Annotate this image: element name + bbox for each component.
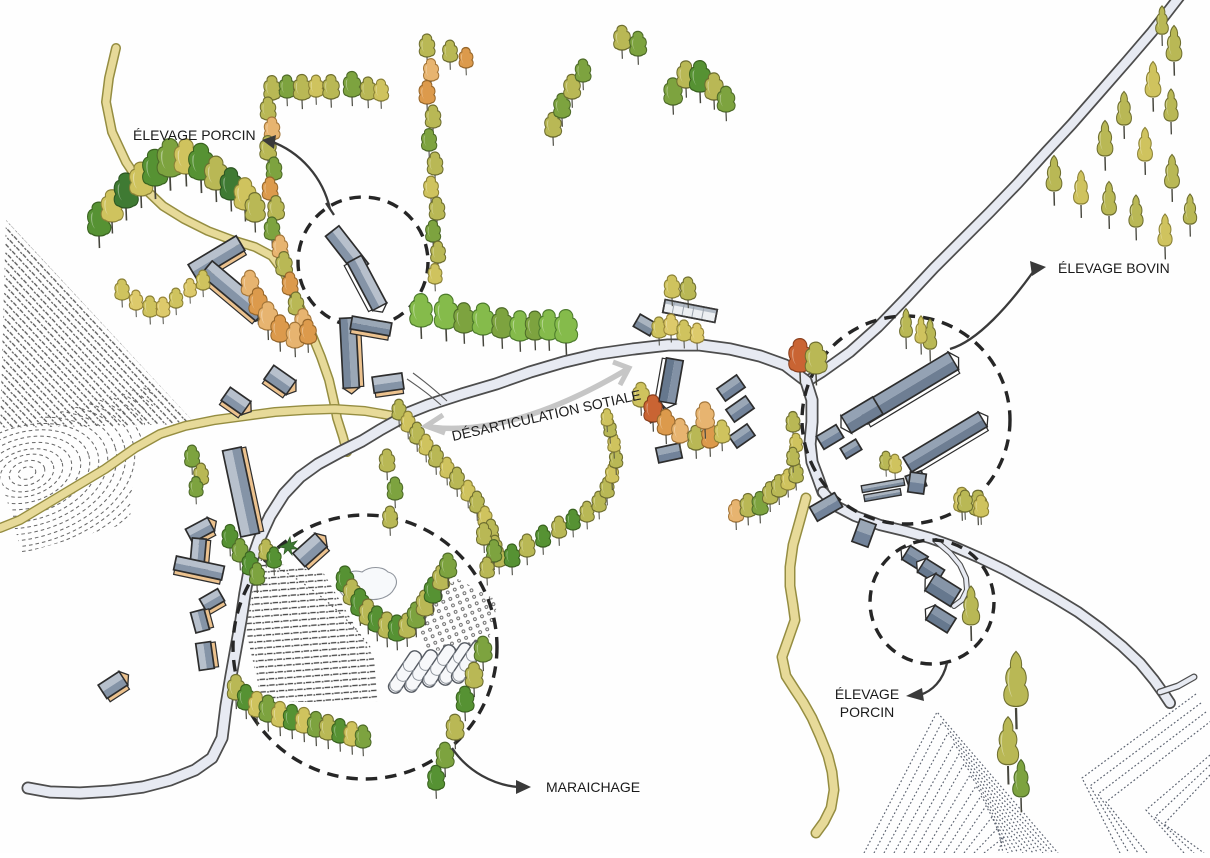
svg-text:PORCIN: PORCIN — [840, 704, 894, 720]
svg-text:ÉLEVAGE BOVIN: ÉLEVAGE BOVIN — [1058, 260, 1170, 276]
svg-text:ÉLEVAGE: ÉLEVAGE — [835, 686, 899, 702]
svg-text:MARAICHAGE: MARAICHAGE — [546, 779, 640, 795]
svg-text:ÉLEVAGE PORCIN: ÉLEVAGE PORCIN — [133, 127, 256, 143]
